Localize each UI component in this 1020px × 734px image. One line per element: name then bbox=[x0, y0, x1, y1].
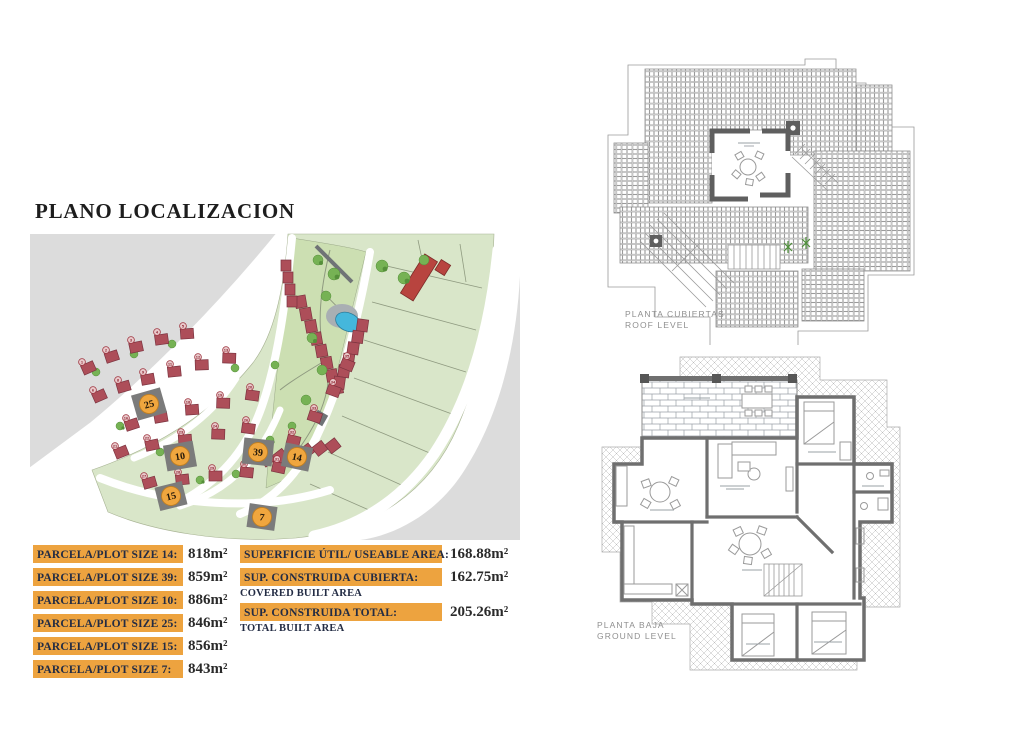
area-label: SUP. CONSTRUIDA CUBIERTA: bbox=[244, 572, 418, 584]
chimney-cap bbox=[790, 125, 795, 130]
parcel-value: 886m² bbox=[188, 591, 228, 609]
svg-text:23: 23 bbox=[179, 429, 184, 434]
table-row: PARCELA/PLOT SIZE 14:818m² bbox=[33, 545, 228, 563]
svg-text:13: 13 bbox=[224, 347, 229, 352]
table-row: SUP. CONSTRUIDA TOTAL:205.26m² bbox=[240, 603, 508, 621]
page-title: PLANO LOCALIZACION bbox=[35, 199, 295, 224]
ground-plan-label: PLANTA BAJA bbox=[597, 620, 665, 630]
ground-plan-label: GROUND LEVEL bbox=[597, 631, 677, 641]
roof-plan-label: PLANTA CUBIERTAS bbox=[625, 309, 725, 319]
roof-stairs-run bbox=[728, 245, 780, 269]
site-plan-svg: 1234568911121316171819202122232426272829… bbox=[30, 230, 520, 540]
document-page: PLANO LOCALIZACION bbox=[0, 0, 1020, 734]
svg-text:16: 16 bbox=[124, 415, 129, 420]
area-value: 205.26m² bbox=[450, 603, 508, 621]
svg-text:39: 39 bbox=[252, 447, 263, 459]
svg-text:27: 27 bbox=[142, 473, 147, 478]
parcel-label: PARCELA/PLOT SIZE 15: bbox=[37, 641, 178, 653]
stairs bbox=[764, 564, 802, 596]
parcel-label: PARCELA/PLOT SIZE 7: bbox=[37, 664, 172, 676]
svg-text:28: 28 bbox=[176, 469, 181, 474]
svg-text:21: 21 bbox=[113, 443, 118, 448]
svg-text:12: 12 bbox=[196, 354, 201, 359]
table-row: PARCELA/PLOT SIZE 7:843m² bbox=[33, 660, 228, 678]
parcel-label: PARCELA/PLOT SIZE 14: bbox=[37, 549, 178, 561]
area-sublabel: TOTAL BUILT AREA bbox=[240, 623, 344, 634]
area-label: SUP. CONSTRUIDA TOTAL: bbox=[244, 607, 397, 619]
svg-text:24: 24 bbox=[213, 423, 218, 428]
svg-text:18: 18 bbox=[186, 399, 191, 404]
parcel-value: 843m² bbox=[188, 660, 228, 678]
table-row: SUPERFICIE ÚTIL/ USEABLE AREA:168.88m² bbox=[240, 545, 508, 563]
svg-text:22: 22 bbox=[145, 435, 150, 440]
patio-table-set bbox=[742, 386, 772, 416]
area-value: 168.88m² bbox=[450, 545, 508, 563]
parcel-value: 859m² bbox=[188, 568, 228, 586]
svg-text:31: 31 bbox=[275, 456, 280, 461]
table-row: PARCELA/PLOT SIZE 39:859m² bbox=[33, 568, 228, 586]
table-row: PARCELA/PLOT SIZE 25:846m² bbox=[33, 614, 228, 632]
svg-text:20: 20 bbox=[248, 384, 253, 389]
area-label: SUPERFICIE ÚTIL/ USEABLE AREA: bbox=[244, 549, 449, 561]
svg-text:10: 10 bbox=[174, 451, 186, 464]
ground-plan-svg: PLANTA BAJA GROUND LEVEL bbox=[592, 352, 937, 697]
highlighted-plot: 7 bbox=[246, 503, 277, 531]
parcel-value: 856m² bbox=[188, 637, 228, 655]
roof-plan-svg: PLANTA CUBIERTAS ROOF LEVEL bbox=[600, 55, 920, 345]
table-row: PARCELA/PLOT SIZE 10:886m² bbox=[33, 591, 228, 609]
parcel-value: 818m² bbox=[188, 545, 228, 563]
highlighted-plot: 39 bbox=[242, 438, 275, 467]
svg-text:19: 19 bbox=[218, 392, 223, 397]
roof-plan-label: ROOF LEVEL bbox=[625, 320, 689, 330]
svg-text:35: 35 bbox=[345, 353, 350, 358]
svg-text:33: 33 bbox=[312, 405, 317, 410]
area-value: 162.75m² bbox=[450, 568, 508, 586]
highlighted-plot: 10 bbox=[163, 441, 197, 472]
table-row: SUP. CONSTRUIDA CUBIERTA:162.75m² bbox=[240, 568, 508, 586]
chimney-cap bbox=[654, 239, 659, 244]
table-row: PARCELA/PLOT SIZE 15:856m² bbox=[33, 637, 228, 655]
parcel-label: PARCELA/PLOT SIZE 39: bbox=[37, 572, 178, 584]
parcel-label: PARCELA/PLOT SIZE 25: bbox=[37, 618, 178, 630]
svg-text:26: 26 bbox=[244, 417, 249, 422]
area-sublabel: COVERED BUILT AREA bbox=[240, 588, 362, 599]
parcel-value: 846m² bbox=[188, 614, 228, 632]
svg-text:34: 34 bbox=[331, 379, 336, 384]
parcel-label: PARCELA/PLOT SIZE 10: bbox=[37, 595, 178, 607]
brick-patio bbox=[642, 380, 797, 438]
svg-text:32: 32 bbox=[290, 429, 295, 434]
svg-text:29: 29 bbox=[210, 465, 215, 470]
